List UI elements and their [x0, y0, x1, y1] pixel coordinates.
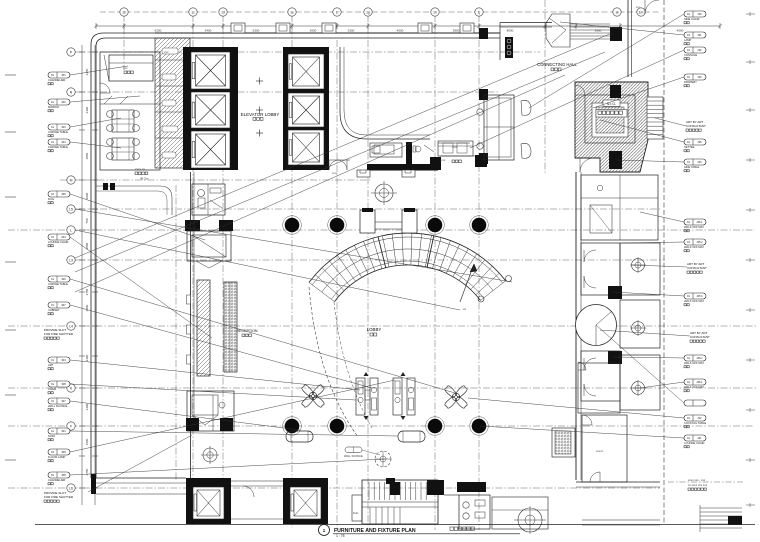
svg-text:302: 302	[698, 417, 703, 420]
svg-text:2750: 2750	[85, 288, 89, 295]
svg-text:1d: 1d	[221, 11, 225, 15]
svg-text:L4: L4	[69, 325, 73, 329]
svg-text:6300: 6300	[253, 29, 260, 33]
svg-text:WALK OFF MAT: WALK OFF MAT	[684, 299, 704, 303]
svg-text:SIDE CHAIR: SIDE CHAIR	[684, 17, 699, 21]
svg-text:LOBBY: LOBBY	[367, 327, 382, 332]
svg-text:402: 402	[61, 100, 66, 104]
svg-text:201: 201	[698, 437, 703, 440]
svg-text:403: 403	[61, 125, 66, 129]
svg-text:301: 301	[61, 429, 66, 433]
svg-text:203: 203	[698, 161, 703, 164]
svg-text:CHAIR: CHAIR	[48, 387, 56, 391]
svg-text:COFFEE TABLE: COFFEE TABLE	[48, 145, 68, 149]
svg-text:300: 300	[698, 76, 703, 79]
svg-text:FLOOR LAMP: FLOOR LAMP	[48, 455, 66, 459]
svg-text:409: 409	[61, 450, 66, 454]
svg-text:WALL SCONCE: WALL SCONCE	[344, 454, 363, 458]
svg-text:2400: 2400	[85, 106, 89, 113]
svg-text:WALK OFF MAT: WALK OFF MAT	[684, 361, 704, 365]
svg-text:CHANDELIER: CHANDELIER	[48, 78, 65, 82]
svg-text:L5: L5	[69, 208, 73, 212]
svg-text:F: F	[70, 425, 72, 429]
svg-text:CONSOLE: CONSOLE	[684, 53, 697, 57]
svg-text:6200: 6200	[155, 29, 162, 33]
svg-text:405.3: 405.3	[697, 295, 704, 298]
svg-text:1c: 1c	[191, 11, 195, 15]
svg-text:L6: L6	[69, 487, 73, 491]
svg-text:204: 204	[61, 235, 66, 239]
svg-text:1500: 1500	[85, 438, 89, 445]
svg-text:xxxxx: xxxxx	[596, 449, 604, 453]
svg-text:304: 304	[61, 358, 66, 362]
svg-text:xx xxxx xxx xxx: xx xxxx xxx xxx	[688, 483, 708, 487]
svg-text:FHC: FHC	[353, 511, 358, 515]
svg-text:404: 404	[61, 140, 66, 144]
svg-text:CONNECTING HALL: CONNECTING HALL	[537, 62, 577, 67]
svg-text:8000: 8000	[507, 29, 514, 33]
svg-text:3800: 3800	[453, 29, 460, 33]
svg-text:306: 306	[61, 277, 66, 281]
svg-text:1k: 1k	[615, 11, 619, 15]
svg-text:CONSULTANT: CONSULTANT	[687, 266, 707, 270]
svg-text:MIRROR: MIRROR	[48, 105, 59, 109]
svg-text:xxx: xxx	[164, 50, 169, 54]
svg-text:750: 750	[85, 218, 89, 223]
svg-text:xxxx: xxxx	[440, 159, 446, 162]
svg-text:xxxx: xxxx	[332, 172, 338, 175]
svg-text:L3: L3	[69, 259, 73, 263]
svg-text:SOFA: SOFA	[48, 434, 55, 438]
svg-text:3850: 3850	[85, 152, 89, 159]
svg-text:1b: 1b	[122, 11, 126, 15]
svg-text:xxxx xxx - xxx: xxxx xxx - xxx	[688, 478, 706, 482]
svg-text:COCKTAIL TABLE: COCKTAIL TABLE	[684, 421, 706, 425]
svg-text:308: 308	[61, 382, 66, 386]
svg-text:3600: 3600	[595, 29, 602, 33]
svg-text:LOUNGE CHAIR: LOUNGE CHAIR	[684, 441, 705, 445]
svg-text:307: 307	[61, 303, 66, 307]
svg-text:2400: 2400	[85, 304, 89, 311]
svg-text:401: 401	[61, 73, 66, 77]
svg-text:405.2: 405.2	[697, 241, 704, 244]
svg-text:3300: 3300	[348, 29, 355, 33]
svg-text:WALK OFF MAT: WALK OFF MAT	[684, 385, 704, 389]
svg-text:4000: 4000	[397, 29, 404, 33]
svg-text:300: 300	[698, 13, 703, 16]
svg-text:DRAPERY: DRAPERY	[684, 80, 697, 84]
svg-text:407: 407	[61, 399, 66, 403]
svg-text:LAMP: LAMP	[684, 38, 692, 42]
svg-text:WALL SCONCE: WALL SCONCE	[48, 404, 68, 408]
svg-text:1j: 1j	[478, 11, 481, 15]
svg-text:ELEVATOR LOBBY: ELEVATOR LOBBY	[241, 112, 280, 117]
svg-text:408: 408	[61, 473, 66, 477]
svg-text:FOR FIRE SHUTTER: FOR FIRE SHUTTER	[44, 332, 74, 336]
svg-text:M: M	[70, 179, 73, 183]
svg-text:3400: 3400	[85, 403, 89, 410]
svg-text:SETTEE: SETTEE	[684, 145, 695, 149]
svg-text:1g: 1g	[366, 11, 370, 15]
svg-text:FURNITURE AND FIXTURE PLAN: FURNITURE AND FIXTURE PLAN	[334, 528, 416, 534]
svg-text:COFFEE TABLE: COFFEE TABLE	[48, 282, 68, 286]
svg-text:2000: 2000	[85, 192, 89, 199]
svg-text:CONSULTANT: CONSULTANT	[690, 335, 710, 339]
svg-text:45.3m: 45.3m	[140, 177, 149, 181]
svg-text:305: 305	[698, 141, 703, 144]
svg-text:WALK OFF MAT: WALK OFF MAT	[684, 225, 704, 229]
svg-text:405.2: 405.2	[697, 357, 704, 360]
svg-text:SIDE TABLE: SIDE TABLE	[684, 165, 699, 169]
svg-text:ART: ART	[48, 363, 54, 367]
svg-text:COFFEE TABLE: COFFEE TABLE	[48, 130, 68, 134]
svg-text:CABINET: CABINET	[48, 308, 60, 312]
svg-text:xxxx xx: xxxx xx	[135, 167, 145, 171]
svg-text:1m: 1m	[639, 11, 644, 15]
svg-text:3400: 3400	[205, 29, 212, 33]
svg-text:CONSULTANT: CONSULTANT	[686, 124, 706, 128]
svg-text:1f: 1f	[336, 11, 339, 15]
svg-text:405.1: 405.1	[697, 221, 704, 224]
svg-text:1h: 1h	[433, 11, 437, 15]
svg-text:L: L	[70, 229, 72, 233]
svg-text:FOR FIRE SHUTTER: FOR FIRE SHUTTER	[44, 495, 74, 499]
svg-text:xx: xx	[463, 307, 467, 311]
svg-text:CHANDELIER: CHANDELIER	[48, 478, 65, 482]
svg-text:405: 405	[61, 192, 66, 196]
svg-text:WALK OFF MAT: WALK OFF MAT	[684, 245, 704, 249]
svg-text:3150: 3150	[85, 68, 89, 75]
svg-text:RUG: RUG	[48, 197, 54, 201]
svg-text:3600: 3600	[310, 29, 317, 33]
svg-text:405.1: 405.1	[697, 381, 704, 384]
svg-text:1e: 1e	[290, 11, 294, 15]
svg-text:RECEPTION: RECEPTION	[237, 329, 258, 333]
svg-text:LOUNGE CHAIR: LOUNGE CHAIR	[48, 240, 69, 244]
svg-text:202: 202	[698, 49, 703, 52]
svg-text:2400: 2400	[85, 354, 89, 361]
svg-text:401: 401	[698, 34, 703, 37]
svg-text:4000: 4000	[677, 29, 684, 33]
